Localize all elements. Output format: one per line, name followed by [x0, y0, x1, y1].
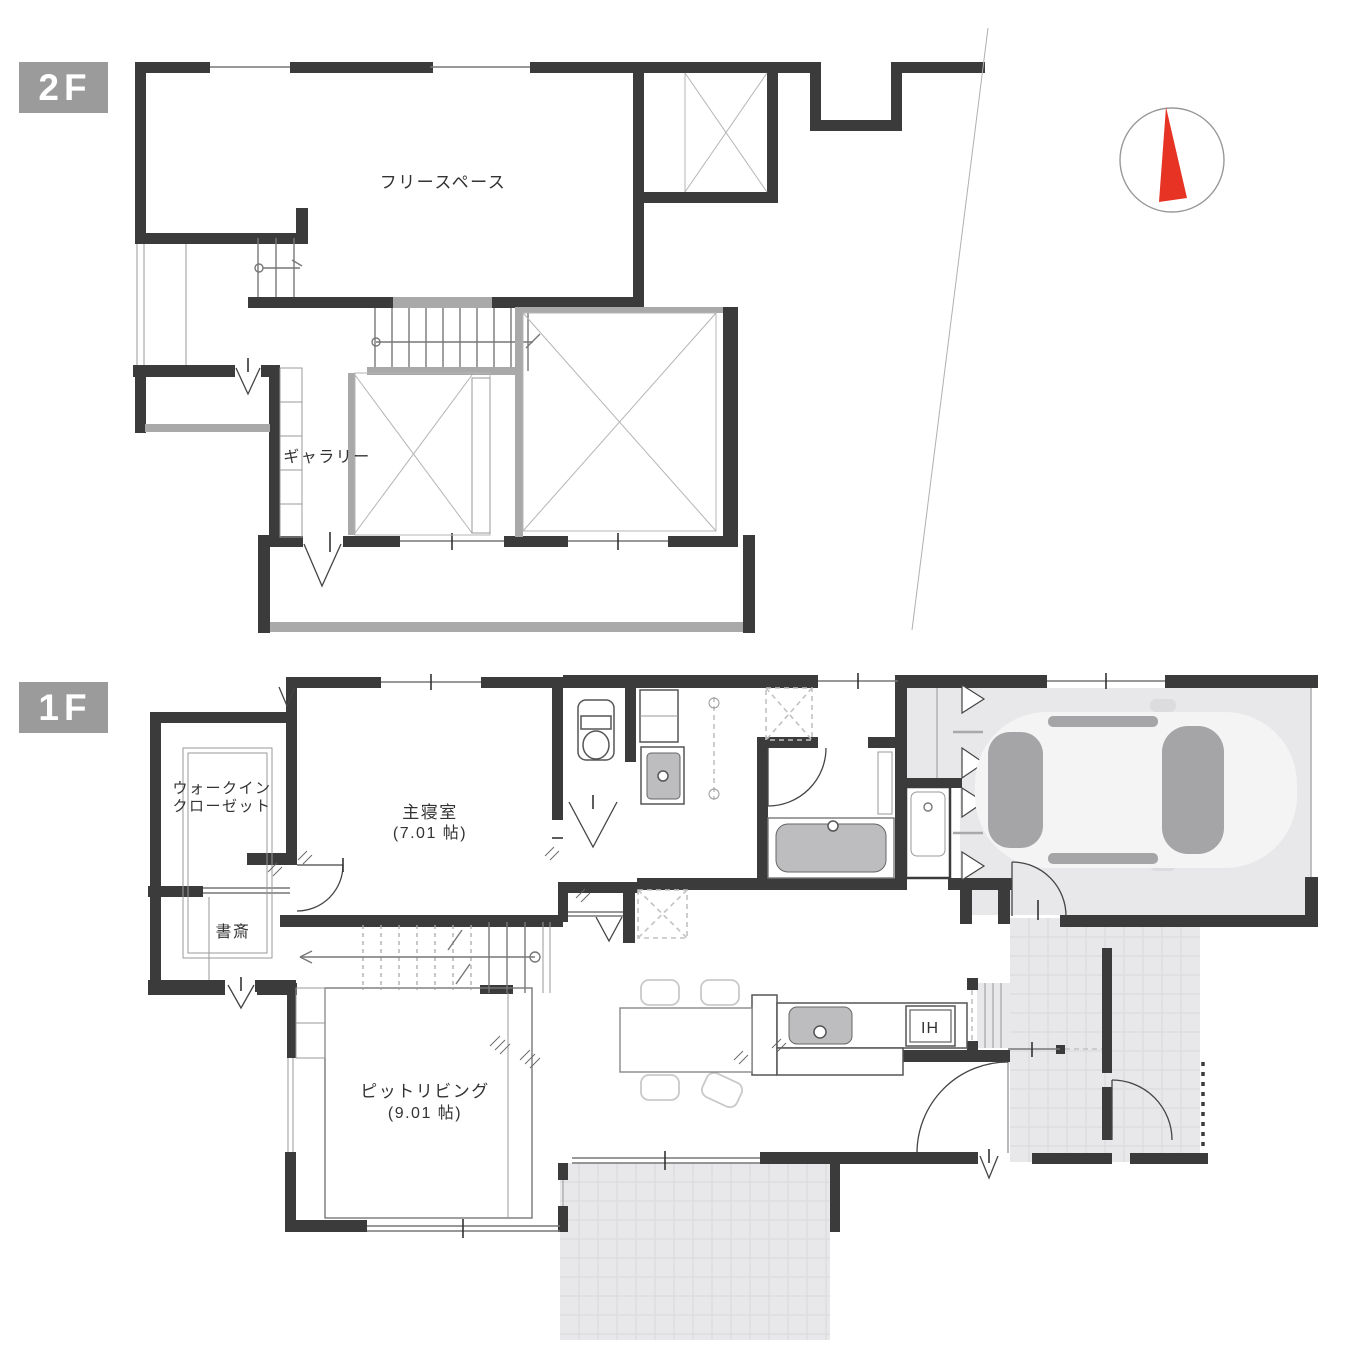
floor2-walls — [133, 62, 985, 633]
door-washroom — [596, 917, 622, 941]
closet-x-icon — [685, 73, 767, 192]
back-porch-step — [977, 983, 1010, 1048]
door-gate — [980, 1149, 998, 1178]
ih-cooktop: IH — [906, 1006, 955, 1046]
washing-machine — [906, 787, 950, 878]
room-label-bedroom-1: 主寝室 — [402, 802, 458, 822]
door-bedroom — [297, 858, 343, 911]
floor2-plan: 2F — [19, 62, 985, 633]
skylight-dashed-box-bath — [766, 688, 812, 740]
floor1-plan: 1F — [19, 673, 1318, 1340]
door-2f-closet — [236, 358, 260, 394]
floorplan-page: 2F — [0, 0, 1350, 1350]
bathtub — [768, 752, 894, 878]
stairs-2f-upper — [255, 238, 302, 297]
curtain-divider — [709, 697, 719, 800]
closet-pole — [145, 424, 270, 432]
floor2-badge-label: 2F — [38, 67, 91, 108]
site-boundary-line — [912, 28, 988, 630]
toilet — [578, 700, 614, 760]
vanity-sink — [641, 747, 684, 804]
dining-table — [620, 980, 752, 1110]
floor1-badge-label: 1F — [38, 687, 91, 728]
skylight-dashed-box-hall — [638, 890, 687, 938]
room-label-living-1: ピットリビング — [360, 1082, 490, 1101]
car — [975, 699, 1297, 871]
room-label-living-2: (9.01 帖) — [388, 1104, 462, 1122]
pit-living-step — [325, 988, 540, 1218]
ih-label: IH — [921, 1020, 939, 1037]
floor2-badge: 2F — [19, 62, 108, 113]
room-label-wic-2: クローゼット — [172, 798, 271, 815]
door-toilet — [569, 795, 617, 847]
door-2f-balcony — [304, 532, 341, 586]
balcony-rail — [270, 622, 743, 632]
room-label-study: 書斎 — [215, 923, 250, 941]
floorplan-drawing: 2F — [0, 0, 1350, 1350]
door-ldk — [917, 1062, 1008, 1153]
room-label-bedroom-2: (7.01 帖) — [393, 824, 467, 842]
stairs-1f — [300, 922, 550, 993]
living-shelf — [296, 988, 325, 1058]
room-label-free-space: フリースペース — [380, 173, 507, 192]
void-box-large — [515, 307, 723, 537]
compass-north-icon — [1120, 107, 1224, 212]
kitchen-counter: IH — [752, 995, 967, 1075]
stairs-2f-main — [367, 297, 540, 375]
terrace-tiles — [560, 1163, 830, 1340]
washroom-cabinet — [640, 690, 678, 742]
door-study — [228, 977, 254, 1008]
door-bath — [768, 748, 826, 806]
room-label-wic-1: ウォークイン — [172, 780, 271, 797]
floor1-badge: 1F — [19, 682, 108, 733]
room-label-gallery: ギャラリー — [283, 448, 371, 466]
